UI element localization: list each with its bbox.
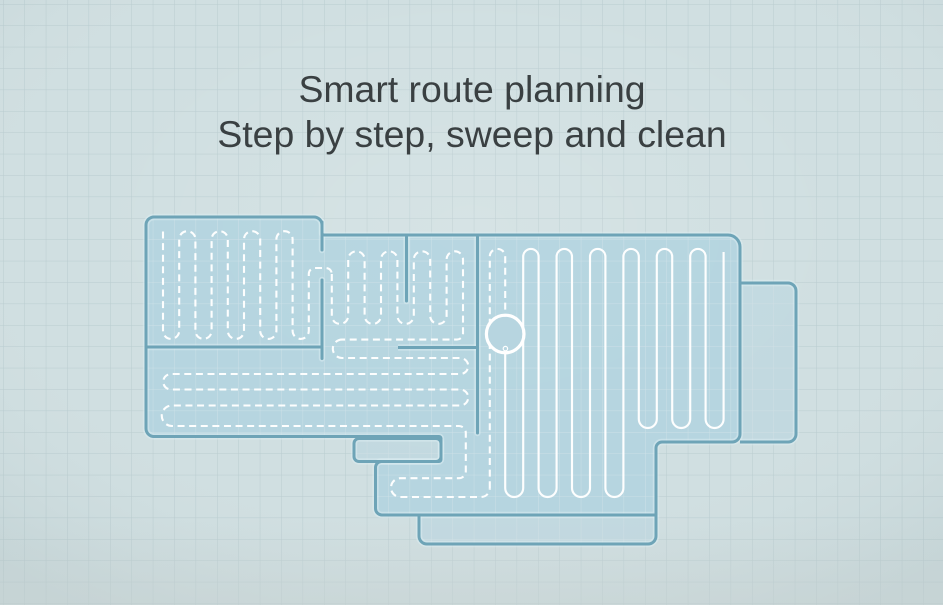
- svg-text:Step by step, sweep and clean: Step by step, sweep and clean: [217, 113, 726, 155]
- svg-text:Smart route planning: Smart route planning: [298, 68, 645, 110]
